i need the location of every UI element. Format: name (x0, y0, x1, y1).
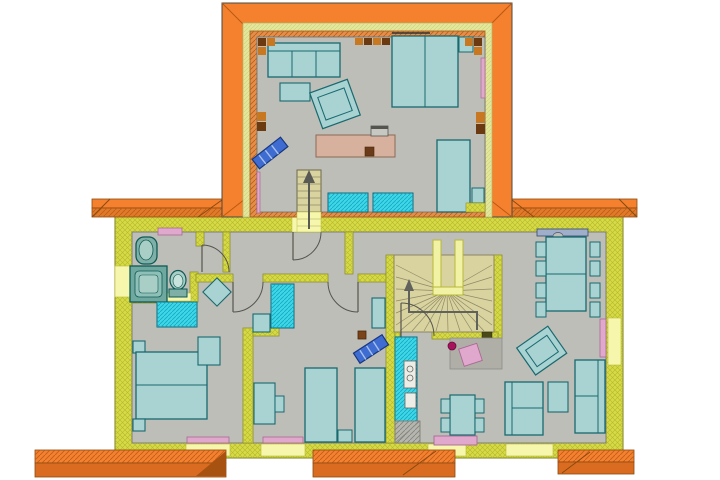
bedroom2-shelf-a (253, 314, 270, 332)
small-table-chair-2 (441, 418, 450, 432)
bedroom1-nightstand-a (133, 341, 145, 353)
roof-post-ml-1 (257, 112, 266, 121)
bedroom2-desk (254, 383, 275, 424)
bedroom2-shelf-b (372, 298, 385, 328)
roof-post-tm-1 (355, 38, 363, 45)
toilet-cistern (169, 289, 187, 297)
wall-bath-right-hatch (196, 232, 204, 246)
balcony-right-top-hatch (558, 450, 634, 462)
shower-tub-basin (139, 275, 158, 293)
dining-chair-l4 (536, 302, 546, 317)
dining-chair-r2 (590, 261, 600, 276)
dining-chair-l1 (536, 242, 546, 257)
attic-box (472, 188, 484, 203)
attic-wardrobe (437, 140, 470, 212)
balcony-left-top-hatch (35, 450, 226, 463)
window-sill-right (600, 319, 606, 357)
bench-pink (434, 436, 477, 445)
bedroom2-bed-a (305, 368, 337, 442)
roof-post-tr-3 (474, 47, 482, 55)
floor-plan-page (0, 0, 720, 480)
bedroom1-nightstand-b (133, 419, 145, 431)
attic-desk-drawer (365, 147, 374, 156)
wall-bedroom-divider-hatch (243, 328, 253, 443)
roof-post-tl-1 (258, 38, 266, 46)
roof-post-tm-2 (364, 38, 372, 45)
attic-mat-1-hatch (328, 193, 368, 212)
eave-right-bottom-hatch (512, 208, 637, 217)
attic-side-table (280, 83, 310, 101)
roof-post-tr-2 (474, 38, 482, 46)
attic-window-right (481, 58, 485, 98)
balcony-mid-bottom (313, 463, 455, 477)
kitchen-stove (404, 361, 416, 388)
roof-post-tl-3 (258, 47, 266, 55)
roof-post-tm-4 (382, 38, 390, 45)
bedroom2-box (358, 331, 366, 339)
small-table-chair-3 (475, 399, 484, 413)
window-sill-1 (187, 437, 229, 443)
living-coffee-table (548, 382, 568, 412)
bathtub-basin (139, 240, 153, 260)
attic-window-left (257, 172, 260, 213)
bedroom2-wardrobe-hatch (271, 284, 294, 328)
kitchen-sink (405, 393, 416, 408)
small-table-chair-4 (475, 418, 484, 432)
dining-chair-r1 (590, 242, 600, 257)
dining-chair-l2 (536, 261, 546, 276)
window-sill-2 (263, 437, 303, 443)
wall-hall-mid-hatch (345, 232, 353, 274)
stair-island-base (433, 287, 463, 295)
bedroom2-desk-chair (275, 396, 284, 412)
attic-mat-2-hatch (373, 193, 413, 212)
wall-stair-right-hatch (494, 255, 502, 338)
dining-chair-l3 (536, 283, 546, 298)
wall-hall-stub-hatch (223, 232, 230, 272)
attic-desk (316, 135, 395, 157)
roof-post-tl-2 (267, 38, 275, 46)
eave-left-bottom-hatch (92, 208, 222, 217)
attic-desk-chair-back (371, 126, 388, 129)
window-bottom-2 (261, 444, 305, 456)
small-table-chair-1 (441, 399, 450, 413)
dining-chair-r4 (590, 302, 600, 317)
bedroom2-bed-b (355, 368, 385, 442)
bedroom2-nightstand (338, 430, 352, 442)
balcony-mid-top-hatch (313, 450, 455, 463)
eave-left-top (92, 199, 222, 208)
floor-plan-canvas (0, 0, 720, 480)
living-plant-dot (448, 342, 456, 350)
toilet-seat (173, 275, 183, 288)
bath-shelf (158, 228, 182, 235)
dining-chair-r3 (590, 283, 600, 298)
bedroom1-shelf (198, 337, 220, 365)
window-right (608, 318, 621, 365)
wall-hall-2-hatch (263, 274, 328, 282)
bedroom1-rug-hatch (157, 302, 197, 327)
roof-post-ml-2 (257, 122, 266, 131)
roof-post-mr-2 (476, 124, 485, 134)
attic-sofa (268, 43, 340, 77)
roof-post-tm-3 (373, 38, 381, 45)
roof-post-mr-1 (476, 112, 485, 123)
small-table (450, 395, 475, 435)
window-bottom-4 (506, 444, 553, 456)
attic-corner-wall-hatch (466, 203, 485, 212)
eave-right-top (512, 199, 637, 208)
roof-post-tr-1 (465, 38, 473, 46)
